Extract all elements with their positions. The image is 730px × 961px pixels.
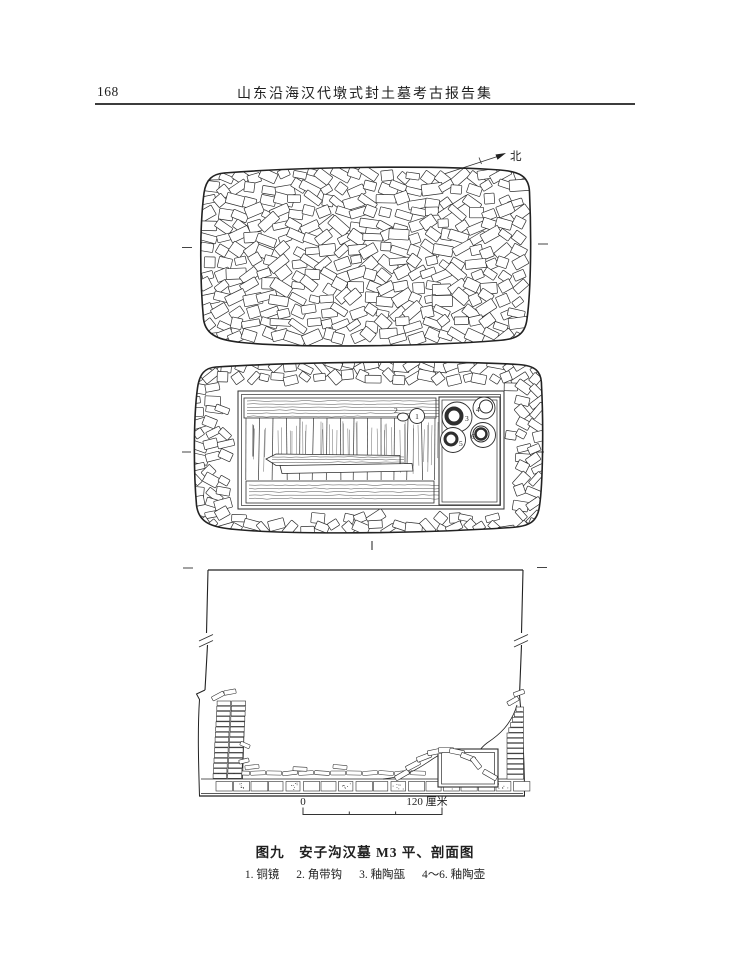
stone (201, 332, 219, 342)
floor-stone (374, 782, 388, 792)
floor-stone (234, 782, 250, 792)
stone (191, 407, 204, 417)
stone (342, 360, 355, 369)
stone (228, 241, 246, 258)
stone (190, 372, 203, 385)
brick (217, 701, 231, 706)
stone (319, 243, 337, 256)
stone (377, 280, 396, 296)
brick (214, 763, 228, 768)
stone (224, 689, 237, 696)
stone (199, 302, 213, 315)
brick (215, 743, 229, 748)
stone (246, 305, 261, 319)
brick (516, 707, 523, 712)
brick (514, 712, 523, 717)
stone (363, 358, 379, 370)
brick (230, 732, 244, 737)
floor-stone (514, 782, 530, 792)
stone (192, 383, 208, 395)
stone (218, 448, 234, 461)
stone (267, 518, 285, 532)
stone (362, 770, 377, 775)
stone (495, 293, 510, 307)
figure-legend: 1. 铜镜 2. 角带钩 3. 釉陶瓿 4～6. 釉陶壶 (0, 866, 730, 882)
brick (507, 775, 524, 780)
floor-stone (269, 782, 284, 792)
stone (512, 254, 529, 270)
stone (365, 375, 381, 383)
stone (270, 318, 291, 326)
stone (498, 279, 514, 294)
stone (515, 429, 527, 440)
stone (191, 462, 206, 471)
stone (241, 328, 257, 342)
stone (471, 373, 487, 385)
stone (363, 268, 377, 281)
figure-caption: 图九 安子沟汉墓 M3 平、剖面图 (0, 841, 730, 861)
stone (193, 359, 205, 368)
north-arrowhead-icon (496, 153, 507, 160)
scale-bar: 0 120 厘米 (300, 795, 447, 815)
stone (197, 221, 217, 231)
stone (215, 244, 229, 258)
brick (214, 753, 228, 758)
brick (216, 717, 230, 722)
belt-hook-2 (398, 413, 409, 421)
stone (528, 517, 547, 531)
stone (469, 207, 483, 218)
stone (301, 304, 316, 314)
stone (411, 207, 427, 217)
stone (288, 195, 301, 203)
artifact-label-4: 4 (476, 405, 480, 414)
stone (378, 770, 393, 775)
pit-wall-right (520, 570, 524, 695)
brick (228, 774, 242, 779)
brick (213, 769, 227, 774)
pit-wall-left (205, 570, 208, 690)
stone (319, 295, 333, 303)
stone (191, 495, 205, 507)
brick (507, 743, 524, 748)
stone (334, 243, 350, 258)
brick (215, 732, 229, 737)
stone (327, 519, 340, 531)
stone (203, 438, 219, 450)
floor-stone (304, 782, 320, 792)
brick (230, 727, 244, 732)
stone (320, 184, 332, 196)
stone (266, 771, 281, 775)
floor-stone (339, 782, 353, 792)
stone (487, 360, 506, 370)
figure-caption-block: 图九 安子沟汉墓 M3 平、剖面图 1. 铜镜 2. 角带钩 3. 釉陶瓿 4～… (0, 841, 730, 882)
stone (289, 292, 307, 306)
stone (425, 255, 438, 266)
stone (346, 771, 361, 775)
stone-fill (195, 164, 531, 347)
stone (419, 518, 436, 535)
brick (507, 749, 524, 754)
brick (507, 764, 524, 769)
brick (213, 774, 227, 779)
stone (350, 255, 361, 264)
stone (196, 232, 217, 244)
stone (191, 516, 210, 532)
stone (512, 355, 531, 371)
floor-stone (216, 782, 232, 792)
section-view: 0 120 厘米 (180, 555, 555, 825)
artifact-label-6: 6 (471, 432, 475, 441)
floor-stone (409, 782, 425, 792)
plan-stone-paving: 北 (180, 140, 550, 355)
stone (358, 164, 379, 182)
stone (389, 229, 410, 241)
stone (376, 296, 394, 307)
brick (509, 728, 524, 733)
floor-stone (356, 782, 372, 792)
stone (446, 374, 462, 387)
header-rule (95, 103, 635, 105)
stone-wall-left (211, 689, 250, 779)
stone (395, 209, 413, 221)
stone (204, 257, 215, 268)
legend-item-2: 2. 角带钩 (296, 869, 342, 881)
stone (432, 284, 451, 296)
stone (250, 771, 265, 776)
brick (229, 748, 243, 753)
scale-end-label: 120 厘米 (406, 795, 447, 808)
stone (454, 317, 468, 325)
pit-profile-left (197, 690, 206, 796)
stone (511, 230, 526, 245)
stone (341, 369, 354, 380)
plan-burial-chamber: 3 4 5 6 1 2 (180, 355, 555, 555)
artifact-label-5: 5 (459, 439, 463, 448)
stone (393, 375, 405, 385)
stone (245, 764, 259, 769)
stone (202, 415, 218, 429)
stone (484, 193, 495, 204)
stone (230, 317, 243, 330)
stone (376, 194, 396, 203)
stone (465, 258, 487, 269)
legend-item-4: 4～6. 釉陶壶 (422, 869, 485, 881)
stone (333, 764, 347, 769)
brick (231, 717, 245, 722)
stone (512, 296, 524, 307)
brick (231, 706, 245, 711)
stone (395, 317, 409, 326)
stone (218, 475, 230, 486)
stone (231, 371, 245, 385)
stone (197, 205, 216, 222)
brick (232, 701, 246, 706)
brick (216, 722, 230, 727)
brick (507, 759, 524, 764)
stone (529, 383, 545, 399)
stone (368, 520, 382, 528)
stone (513, 689, 525, 697)
stone (331, 332, 345, 345)
brick (507, 769, 524, 774)
north-label: 北 (510, 150, 522, 163)
brick (507, 738, 524, 743)
floor-stone (251, 782, 268, 792)
stone (210, 302, 229, 319)
side-compartment: 3 4 5 6 (439, 397, 500, 505)
break-mark-left (199, 635, 213, 648)
page-header-title: 山东沿海汉代墩式封土墓考古报告集 (95, 83, 635, 103)
stone (505, 430, 517, 440)
stone (334, 182, 348, 196)
stone (247, 371, 261, 385)
stone (217, 371, 228, 382)
legend-item-1: 1. 铜镜 (245, 869, 280, 881)
artifact-label-2: 2 (394, 406, 398, 415)
legend-item-3: 3. 釉陶瓿 (359, 869, 405, 881)
brick (507, 754, 524, 759)
brick (215, 748, 229, 753)
stone (350, 306, 368, 320)
stone (271, 372, 284, 380)
brick (229, 753, 243, 758)
stone (307, 318, 321, 327)
stone (381, 242, 391, 251)
stone (241, 319, 260, 329)
brick (231, 722, 245, 727)
floor-stone (321, 782, 336, 792)
stone (309, 295, 321, 304)
stone (234, 256, 246, 265)
brick (215, 737, 229, 742)
stone (406, 172, 420, 180)
stone (403, 357, 421, 373)
brick (216, 727, 230, 732)
stone (334, 256, 352, 271)
stone (283, 375, 299, 387)
artifact-label-1: 1 (415, 412, 419, 421)
stone (489, 374, 500, 385)
stone (450, 185, 461, 194)
stone (314, 771, 329, 776)
brick (214, 758, 228, 763)
stone (420, 305, 434, 319)
stone (507, 696, 520, 706)
stone (500, 371, 513, 384)
stone (363, 233, 383, 241)
stone (408, 233, 421, 246)
stone (483, 267, 498, 280)
scale-start-label: 0 (300, 796, 306, 808)
stone (211, 691, 225, 701)
report-page: 168 山东沿海汉代墩式封土墓考古报告集 北 (0, 0, 730, 961)
brick (217, 711, 231, 716)
brick (511, 723, 524, 728)
brick (228, 769, 242, 774)
artifact-label-3: 3 (465, 414, 469, 423)
stone (302, 204, 315, 216)
brick (217, 706, 231, 711)
stone (293, 767, 307, 772)
stone (244, 182, 255, 193)
stone (438, 219, 449, 228)
stone (433, 511, 448, 526)
stone (274, 240, 290, 256)
stone (259, 373, 270, 382)
stone (217, 439, 235, 449)
stone (313, 373, 326, 381)
brick (513, 717, 524, 722)
stone (305, 247, 320, 255)
stone (314, 521, 329, 533)
stone (498, 525, 515, 534)
floor-stone (286, 782, 300, 792)
stone (330, 771, 345, 775)
stone-wall-right (507, 689, 525, 779)
stone (200, 242, 214, 253)
brick (231, 711, 245, 716)
scattered-slabs (218, 764, 425, 776)
stone (379, 207, 392, 218)
brick (507, 733, 524, 738)
